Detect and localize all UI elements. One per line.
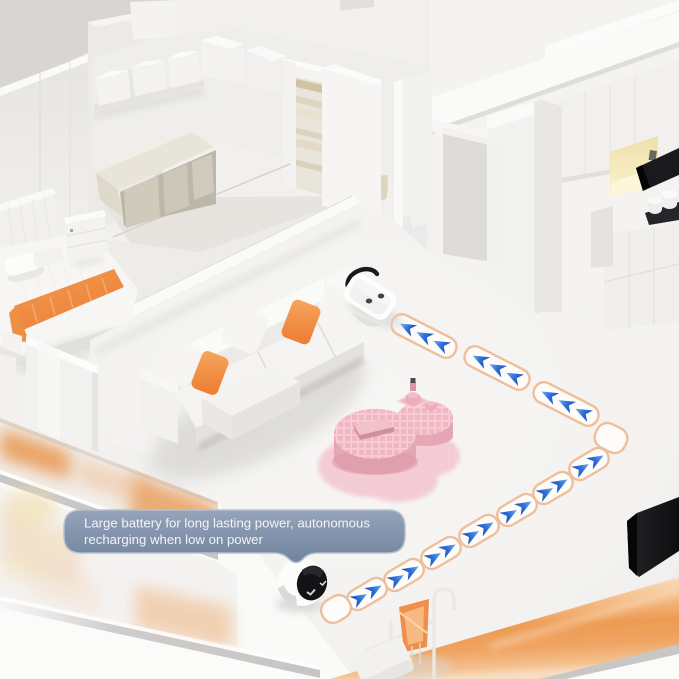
svg-text:recharging when low on power: recharging when low on power: [84, 532, 263, 547]
svg-text:Large battery for long lasting: Large battery for long lasting power, au…: [84, 516, 370, 531]
